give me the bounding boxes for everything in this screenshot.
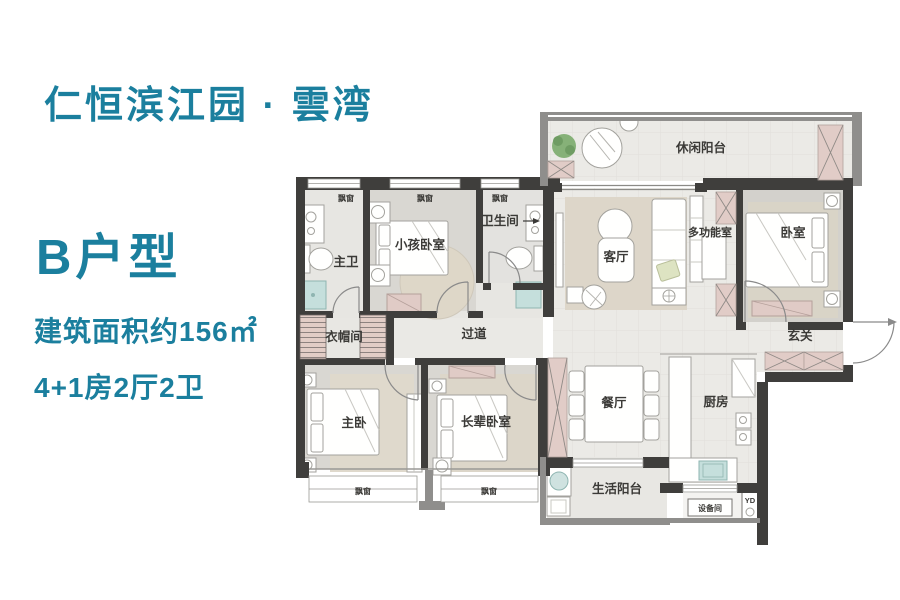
lounge-chair-icon (582, 128, 622, 168)
room-label-kitchen: 厨房 (703, 394, 728, 409)
room-label-cloakroom: 衣帽间 (325, 329, 363, 344)
room-label-elders-bedroom: 长辈卧室 (461, 414, 512, 429)
room-label-service-balcony: 生活阳台 (592, 481, 642, 496)
kitchen-window (683, 485, 737, 492)
bay-window-label-1: 飘窗 (338, 193, 354, 203)
room-label-equipment-room: 设备间 (698, 503, 722, 513)
service-balcony-window (573, 459, 643, 467)
room-label-hallway: 过道 (461, 326, 487, 341)
entry-door (853, 318, 897, 363)
room-label-leisure-balcony: 休闲阳台 (675, 140, 726, 155)
bay-window-top-1 (308, 179, 360, 188)
floor-plan-drawing: 休闲阳台 主卫 小孩卧室 卫生间 客厅 多功能室 卧室 衣帽间 过道 玄关 主卧… (285, 95, 900, 575)
room-label-living-room: 客厅 (602, 249, 629, 264)
bay-window-label-2: 飘窗 (417, 193, 433, 203)
room-label-bedroom: 卧室 (780, 225, 806, 240)
room-label-multi-function: 多功能室 (688, 225, 732, 239)
room-label-dining-room: 餐厅 (600, 395, 627, 410)
foyer-closet (765, 352, 843, 370)
bay-window-label-5: 飘窗 (481, 486, 497, 496)
room-label-master-bath: 主卫 (333, 254, 359, 269)
room-label-bathroom: 卫生间 (481, 213, 519, 228)
layout-label: 4+1房2厅2卫 (34, 366, 205, 406)
plant-icon (552, 134, 576, 158)
area-label: 建筑面积约156㎡ (34, 310, 258, 350)
room-label-foyer: 玄关 (787, 328, 813, 343)
room-label-kids-bedroom: 小孩卧室 (394, 237, 446, 252)
bay-window-label-3: 飘窗 (492, 193, 508, 203)
bay-window-top-3 (481, 179, 519, 188)
cloakroom-wardrobe-left (300, 315, 326, 359)
floorplan-page: 仁恒滨江园 · 雲湾 B户型 建筑面积约156㎡ 4+1房2厅2卫 (0, 0, 900, 600)
unit-type-label: B户型 (36, 218, 181, 289)
room-label-master-bedroom: 主卧 (341, 415, 367, 430)
shelf-icon (690, 196, 703, 282)
yd-label: YD (745, 496, 756, 505)
cloakroom-wardrobe-right (360, 315, 386, 359)
laundry-sink-icon (547, 467, 571, 516)
bay-window-top-2 (390, 179, 460, 188)
bay-window-label-4: 飘窗 (355, 486, 371, 496)
